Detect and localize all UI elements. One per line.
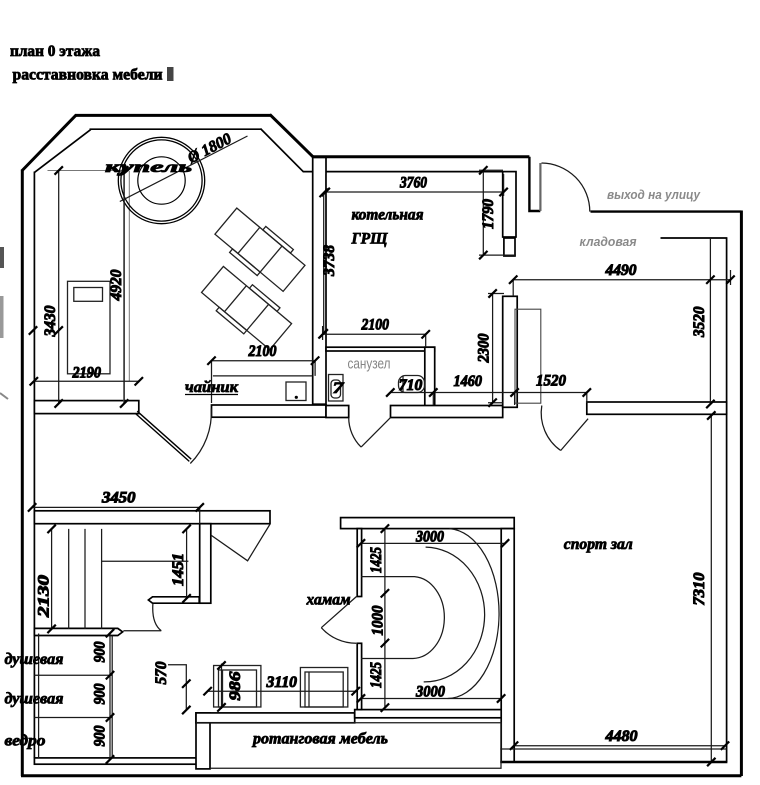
- svg-text:ГРЩ: ГРЩ: [351, 231, 389, 248]
- svg-text:2190: 2190: [72, 365, 101, 382]
- svg-text:1790: 1790: [480, 199, 497, 229]
- svg-text:2100: 2100: [248, 343, 277, 360]
- svg-text:900: 900: [92, 642, 109, 663]
- svg-text:3760: 3760: [399, 175, 427, 192]
- svg-text:7: 7: [333, 380, 345, 397]
- svg-text:4490: 4490: [605, 262, 637, 279]
- svg-text:кладовая: кладовая: [580, 234, 637, 249]
- svg-text:купель: купель: [105, 159, 192, 176]
- svg-text:котельная: котельная: [352, 207, 424, 224]
- svg-text:спорт зал: спорт зал: [564, 536, 633, 553]
- svg-text:2130: 2130: [36, 575, 53, 618]
- svg-text:1425: 1425: [368, 662, 385, 688]
- svg-text:3450: 3450: [101, 490, 136, 507]
- svg-text:план 0 этажа: план 0 этажа: [10, 43, 100, 60]
- svg-text:чайник: чайник: [185, 379, 239, 396]
- svg-text:570: 570: [153, 662, 170, 685]
- svg-text:хамам: хамам: [306, 592, 351, 609]
- svg-text:душевая: душевая: [5, 651, 64, 668]
- svg-text:ведро: ведро: [5, 733, 46, 750]
- svg-text:3520: 3520: [691, 307, 708, 338]
- svg-text:2100: 2100: [361, 317, 389, 334]
- svg-text:4480: 4480: [605, 728, 638, 745]
- svg-text:3430: 3430: [42, 306, 59, 338]
- svg-text:1520: 1520: [536, 373, 566, 390]
- svg-text:900: 900: [92, 684, 109, 705]
- svg-text:7310: 7310: [691, 573, 708, 606]
- svg-text:санузел: санузел: [348, 357, 391, 373]
- svg-text:3738: 3738: [321, 245, 338, 277]
- svg-text:расставновка мебели: расставновка мебели: [13, 67, 163, 84]
- svg-text:900: 900: [92, 726, 109, 747]
- svg-text:1425: 1425: [368, 547, 385, 573]
- svg-text:4920: 4920: [108, 270, 125, 302]
- svg-text:выход на улицу: выход на улицу: [607, 187, 701, 202]
- svg-text:986: 986: [227, 672, 244, 701]
- svg-text:710: 710: [399, 377, 423, 394]
- svg-text:душевая: душевая: [5, 691, 64, 708]
- svg-text:1451: 1451: [170, 553, 187, 586]
- svg-text:2300: 2300: [476, 334, 493, 364]
- svg-text:3110: 3110: [266, 674, 297, 691]
- svg-text:1000: 1000: [370, 606, 387, 636]
- svg-text:3000: 3000: [415, 529, 444, 546]
- svg-text:1460: 1460: [454, 373, 483, 390]
- svg-text:3000: 3000: [415, 684, 445, 701]
- svg-text:ротанговая мебель: ротанговая мебель: [251, 731, 388, 748]
